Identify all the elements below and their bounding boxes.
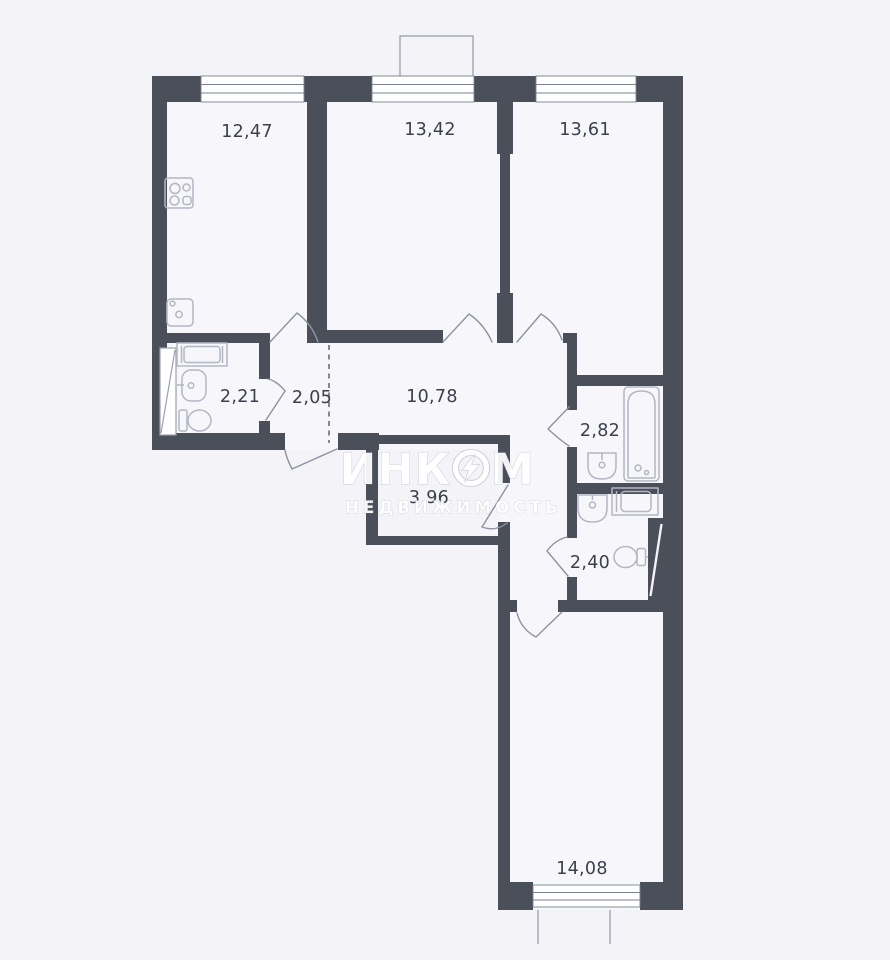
window-room-14-08 xyxy=(533,885,640,907)
room-label-wc-2-40: 2,40 xyxy=(570,553,610,573)
room-label-13-61: 13,61 xyxy=(559,120,611,140)
entrance-door-arc xyxy=(285,449,337,469)
inkom-logo-icon xyxy=(452,449,489,486)
floor-plan: 12,47 13,42 13,61 2,21 2,05 10,78 2,82 3… xyxy=(0,0,890,960)
watermark-subtitle: НЕДВИЖИМОСТЬ xyxy=(345,498,562,517)
terrace-outline xyxy=(538,910,610,944)
watermark-brand-part2: М xyxy=(491,445,535,495)
watermark-brand-part1: ИНК xyxy=(340,445,452,495)
vent-shaft-icon xyxy=(160,348,176,435)
window-room-13-61 xyxy=(536,76,636,102)
floor-plan-page: 12,47 13,42 13,61 2,21 2,05 10,78 2,82 3… xyxy=(0,0,890,960)
window-room-13-42 xyxy=(372,76,474,102)
room-label-corridor: 10,78 xyxy=(406,387,458,407)
room-label-hall-2-05: 2,05 xyxy=(292,388,332,408)
room-label-14-08: 14,08 xyxy=(556,859,608,879)
room-label-kitchen: 12,47 xyxy=(221,122,273,142)
window-kitchen xyxy=(201,76,304,102)
room-label-bath-2-21: 2,21 xyxy=(220,387,260,407)
vent-shaft-icon xyxy=(648,518,663,600)
watermark: ИНК М НЕДВИЖИМОСТЬ xyxy=(340,445,562,517)
room-label-bath-2-82: 2,82 xyxy=(580,421,620,441)
balcony-outline xyxy=(400,36,473,77)
room-label-13-42: 13,42 xyxy=(404,120,456,140)
